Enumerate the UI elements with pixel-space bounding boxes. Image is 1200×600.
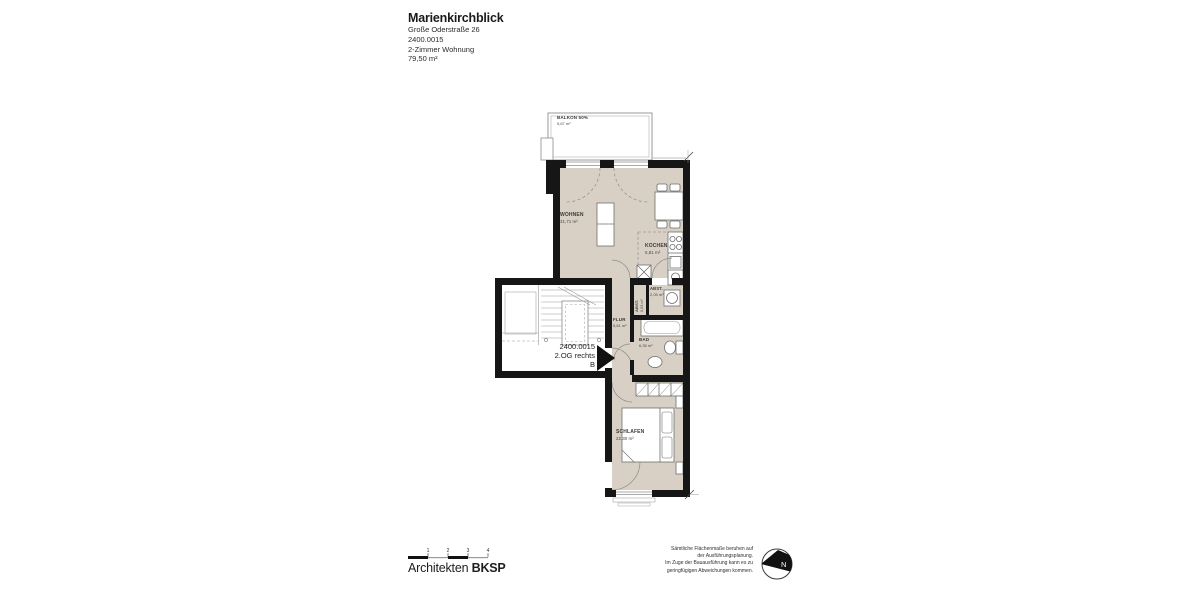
firm-abbr: BKSP <box>472 561 506 575</box>
unit-marker: 2400.0015 2.OG rechts B <box>538 343 595 369</box>
floor-plan-drawing <box>0 0 1200 600</box>
nightstand <box>676 462 683 474</box>
unit-marker-floor: 2.OG rechts <box>538 352 595 361</box>
balcony-outline <box>541 113 686 160</box>
scale-tick-label: 4 <box>483 548 493 554</box>
toilet-icon <box>676 341 683 354</box>
scale-tick-label: 3 <box>463 548 473 554</box>
scale-tick-label: 2 <box>443 548 453 554</box>
wardrobe <box>636 383 683 396</box>
disclaimer-line: Sämtliche Flächenmaße beruhen auf <box>643 546 753 553</box>
disclaimer-text: Sämtliche Flächenmaße beruhen auf der Au… <box>643 546 753 575</box>
scale-tick-label: 1 <box>423 548 433 554</box>
firm-name: Architekten <box>408 561 468 575</box>
north-label: N <box>781 560 786 569</box>
stairwell <box>502 285 604 345</box>
north-arrow-icon: N <box>759 546 795 582</box>
stove-icon <box>670 236 675 241</box>
washer-icon <box>664 290 680 306</box>
nightstand <box>676 396 683 408</box>
unit-marker-letter: B <box>538 361 595 370</box>
dining-table <box>655 192 683 220</box>
floorplan-page: Marienkirchblick Große Oderstraße 26 240… <box>0 0 1200 600</box>
disclaimer-line: geringfügigen Abweichungen kommen. <box>643 568 753 575</box>
disclaimer-line: der Ausführungsplanung. <box>643 553 753 560</box>
architect-firm: Architekten BKSP <box>408 561 506 575</box>
washbasin-icon <box>648 357 662 368</box>
disclaimer-line: Im Zuge der Bauausführung kann es zu <box>643 560 753 567</box>
